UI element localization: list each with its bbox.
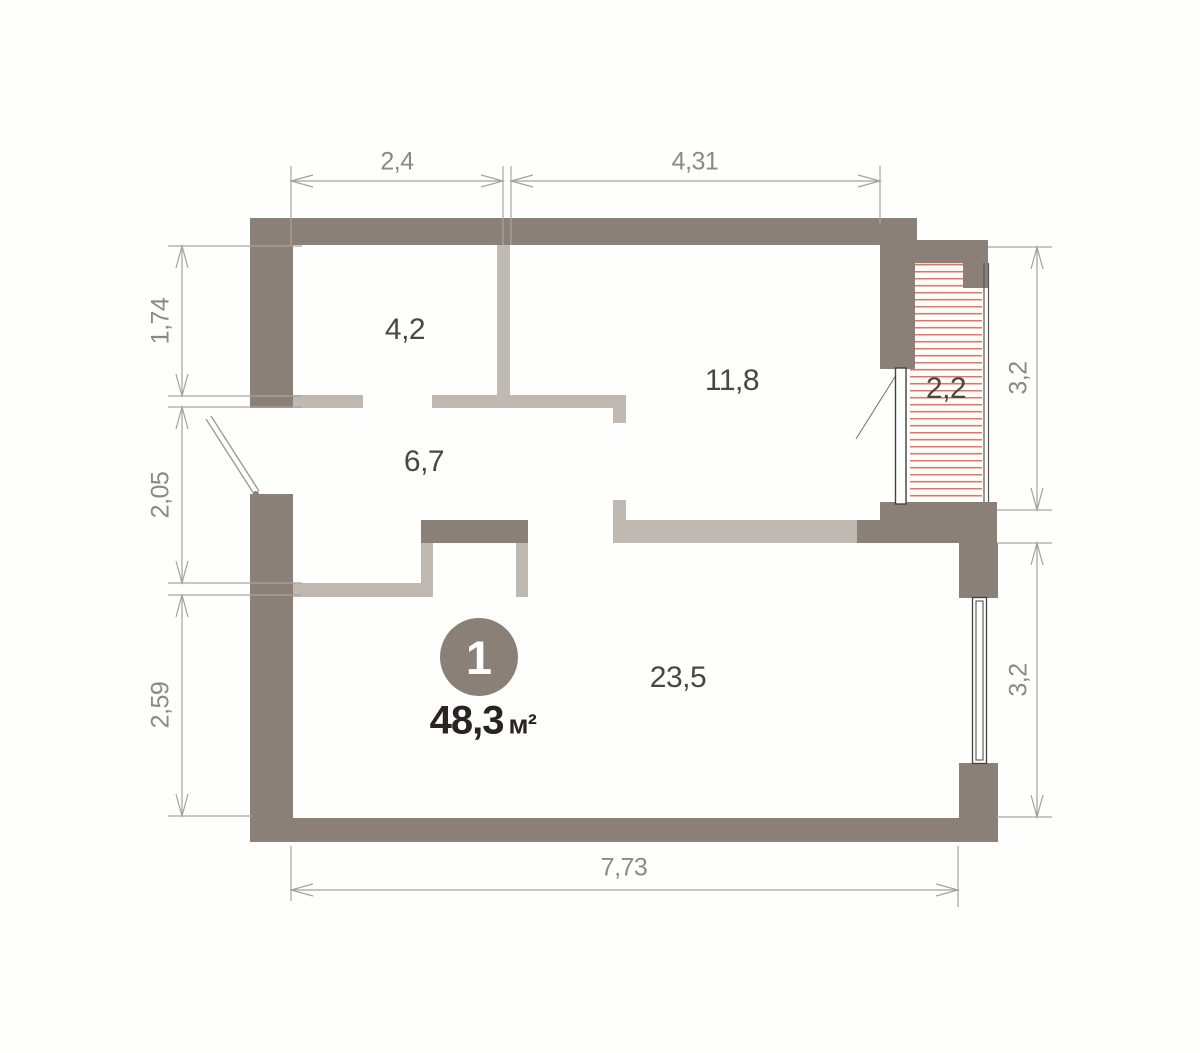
dim-label-top-1: 2,4 <box>380 148 413 177</box>
room-area-label: 4,2 <box>385 313 425 347</box>
dim-label-top-2: 4,31 <box>672 148 719 177</box>
dim-label-bottom-1: 7,73 <box>601 854 648 883</box>
unit-number: 1 <box>466 630 492 685</box>
room-area-label: 11,8 <box>705 364 759 398</box>
room-area-label: 6,7 <box>404 445 444 479</box>
entrance-door <box>206 416 259 497</box>
dim-label-right-2: 3,2 <box>1005 663 1034 696</box>
window <box>973 598 987 764</box>
balcony-glazing-line <box>984 263 989 502</box>
dim-label-left-3: 2,59 <box>147 682 176 729</box>
total-area-unit: м² <box>508 710 536 741</box>
floor-plan: 4,2 11,8 6,7 2,2 23,5 2,4 4,31 1,74 2,05… <box>0 0 1200 1053</box>
dim-label-left-1: 1,74 <box>147 298 176 345</box>
dim-label-right-1: 3,2 <box>1005 361 1034 394</box>
balcony-door <box>856 368 906 504</box>
dimension-and-fixture-linework <box>0 0 1200 1053</box>
room-area-label: 23,5 <box>650 661 706 695</box>
room-area-label: 2,2 <box>926 372 966 406</box>
total-area-value: 48,3 <box>430 699 504 744</box>
dim-label-left-2: 2,05 <box>147 472 176 519</box>
unit-number-badge: 1 <box>440 618 518 696</box>
total-area-label: 48,3 м² <box>430 699 537 744</box>
